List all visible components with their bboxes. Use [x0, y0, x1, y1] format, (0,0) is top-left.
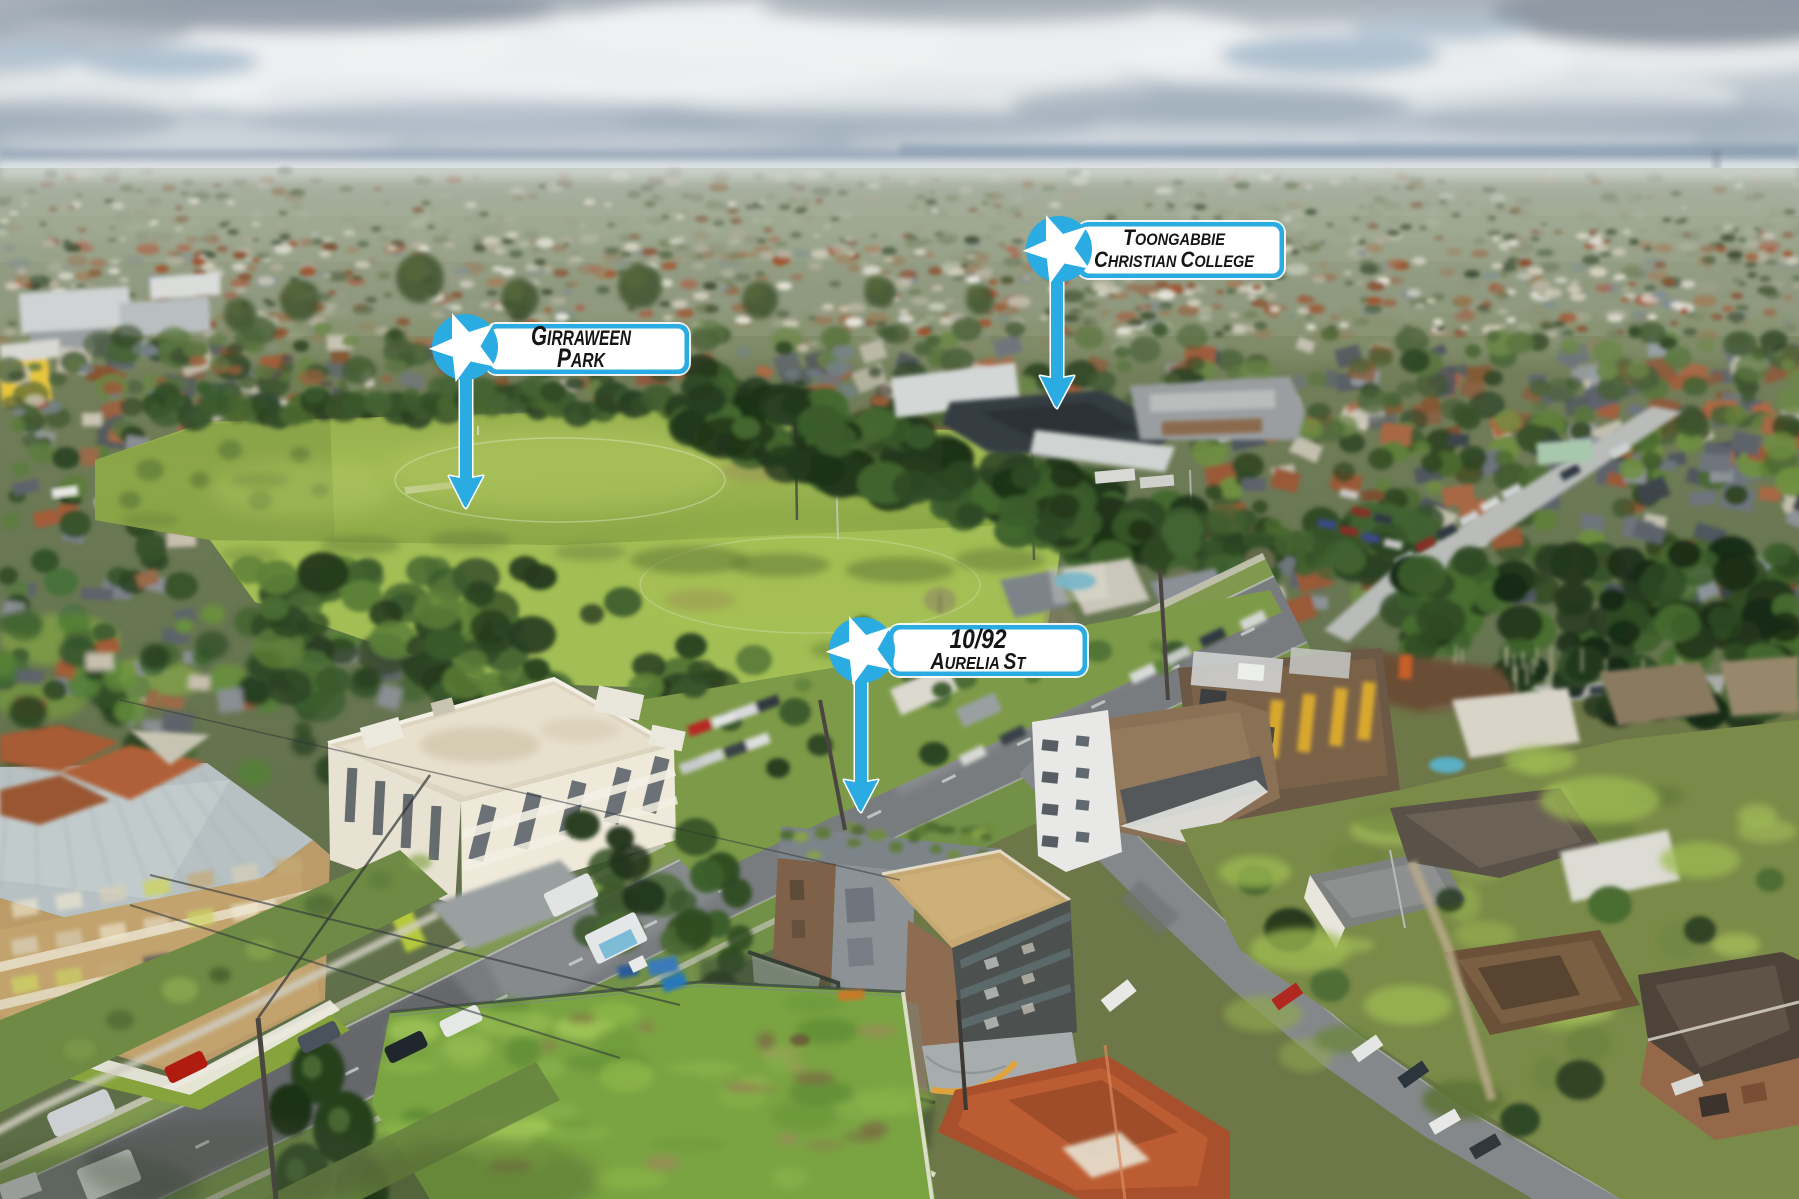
svg-text:10/92: 10/92: [950, 624, 1007, 654]
